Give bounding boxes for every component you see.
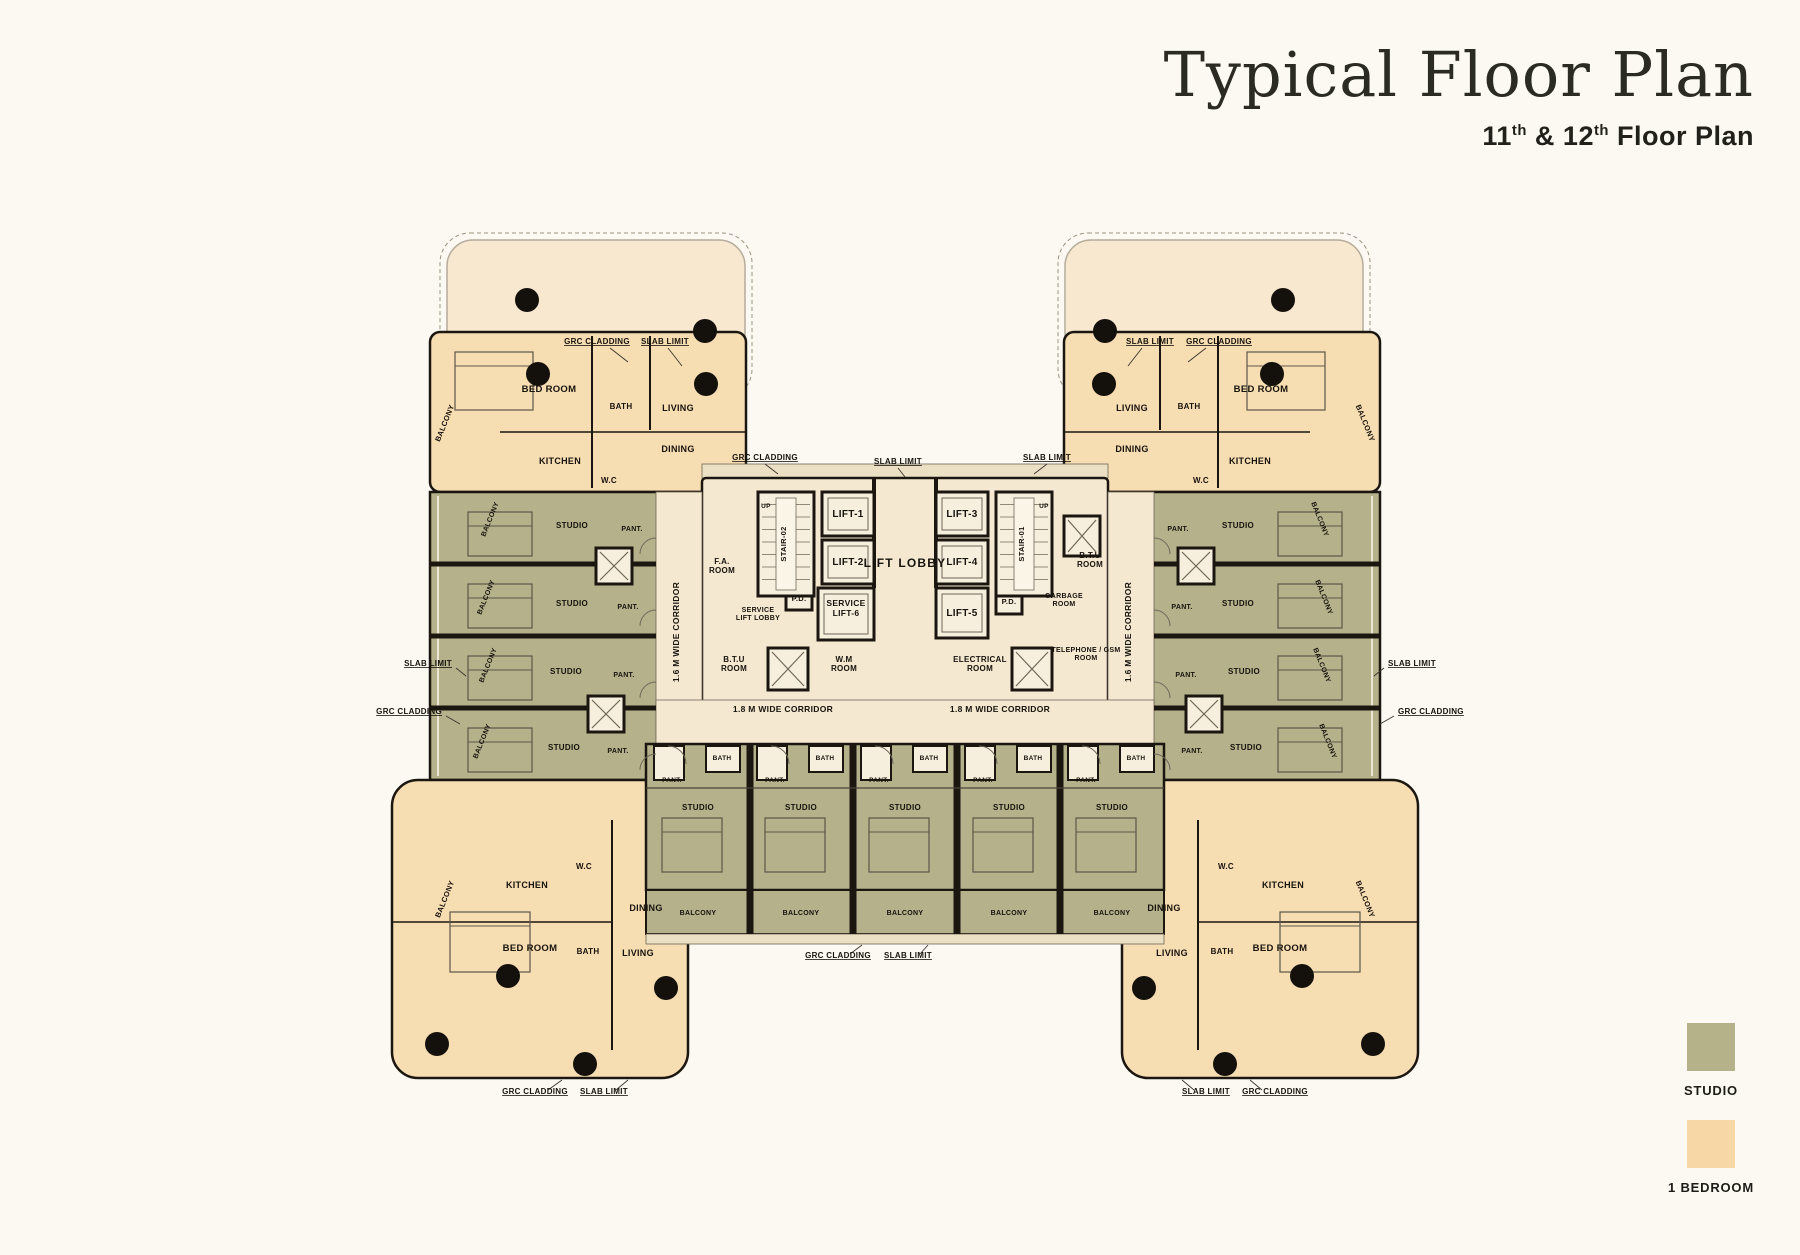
- plan-label-rooms-studio: STUDIO: [1096, 803, 1128, 812]
- plan-label-rooms-kitchen: KITCHEN: [1229, 456, 1271, 466]
- legend: STUDIO 1 BEDROOM: [1645, 1023, 1777, 1217]
- column-dot: [1093, 319, 1117, 343]
- column-dot: [1290, 964, 1314, 988]
- studio-shower-box: [654, 746, 684, 780]
- plan-label-core-lifts-1: LIFT-2: [832, 557, 863, 568]
- plan-label-rooms-living: LIVING: [1116, 403, 1148, 413]
- plan-label-core-pd: P.D.: [792, 594, 807, 603]
- plan-label-core-up: UP: [761, 503, 771, 510]
- plan-label-rooms-pantry: PANT.: [621, 526, 642, 533]
- plan-label-rooms-bedroom: BED ROOM: [1253, 943, 1308, 954]
- plan-label-corridor_wing: 1.6 M WIDE CORRIDOR: [1123, 582, 1133, 682]
- plan-label-core-lifts-4: LIFT-5: [946, 608, 977, 619]
- studio-shower-box: [757, 746, 787, 780]
- column-dot: [496, 964, 520, 988]
- plan-label-rooms-bedroom: BED ROOM: [503, 943, 558, 954]
- plan-label-notes-slab: SLAB LIMIT: [1182, 1087, 1230, 1096]
- plan-label-notes-grc: GRC CLADDING: [1186, 337, 1252, 346]
- column-dot: [526, 362, 550, 386]
- plan-label-rooms-studio: STUDIO: [556, 599, 588, 608]
- plan-label-rooms-pantry: PANT.: [607, 748, 628, 755]
- plan-label-rooms-pantry: PANT.: [1167, 526, 1188, 533]
- plan-label-core-lifts-0: LIFT-1: [832, 509, 863, 520]
- plan-label-rooms-balcony: BALCONY: [680, 910, 717, 917]
- plan-label-rooms-bath: BATH: [1127, 755, 1146, 762]
- column-dot: [515, 288, 539, 312]
- column-dot: [693, 319, 717, 343]
- legend-label-one-bedroom: 1 BEDROOM: [1645, 1180, 1777, 1195]
- plan-label-notes-slab: SLAB LIMIT: [884, 951, 932, 960]
- plan-label-core-btu_room: B.T.UROOM: [721, 655, 747, 673]
- plan-label-rooms-bath: BATH: [1178, 402, 1201, 411]
- floor-plan-drawing: LIFT-1LIFT-2LIFT-3LIFT-4LIFT-5SERVICELIF…: [0, 0, 1800, 1255]
- plan-label-rooms-pantry: PANT.: [973, 777, 993, 784]
- plan-label-rooms-pantry: PANT.: [1181, 748, 1202, 755]
- plan-label-notes-grc: GRC CLADDING: [732, 453, 798, 462]
- column-dot: [1092, 372, 1116, 396]
- plan-label-rooms-bath: BATH: [610, 402, 633, 411]
- plan-label-rooms-pantry: PANT.: [613, 672, 634, 679]
- plan-label-rooms-balcony: BALCONY: [887, 910, 924, 917]
- plan-label-notes-grc: GRC CLADDING: [1398, 707, 1464, 716]
- plan-label-notes-grc: GRC CLADDING: [376, 707, 442, 716]
- studio-shower-box: [1068, 746, 1098, 780]
- plan-label-rooms-dining: DINING: [1147, 903, 1180, 913]
- core-cladding-band: [702, 464, 1108, 478]
- plan-label-corridor_wing: 1.6 M WIDE CORRIDOR: [671, 582, 681, 682]
- plan-label-rooms-bath: BATH: [1211, 947, 1234, 956]
- plan-label-rooms-dining: DINING: [629, 903, 662, 913]
- plan-label-rooms-pantry: PANT.: [869, 777, 889, 784]
- column-dot: [573, 1052, 597, 1076]
- plan-label-rooms-kitchen: KITCHEN: [506, 880, 548, 890]
- plan-label-rooms-kitchen: KITCHEN: [1262, 880, 1304, 890]
- plan-label-rooms-bath: BATH: [713, 755, 732, 762]
- plan-label-notes-slab: SLAB LIMIT: [641, 337, 689, 346]
- legend-item-one-bedroom: 1 BEDROOM: [1645, 1120, 1777, 1195]
- plan-label-notes-grc: GRC CLADDING: [1242, 1087, 1308, 1096]
- plan-label-rooms-wc: W.C: [1218, 862, 1234, 871]
- plan-label-rooms-balcony: BALCONY: [991, 910, 1028, 917]
- plan-label-rooms-pantry: PANT.: [662, 777, 682, 784]
- plan-label-rooms-pantry: PANT.: [1175, 672, 1196, 679]
- legend-item-studio: STUDIO: [1645, 1023, 1777, 1098]
- legend-swatch-studio: [1687, 1023, 1735, 1071]
- plan-label-rooms-studio: STUDIO: [548, 743, 580, 752]
- plan-label-core-pd: P.D.: [1002, 597, 1017, 606]
- unit-1bed-top-right: [1064, 332, 1380, 492]
- plan-label-rooms-studio: STUDIO: [550, 667, 582, 676]
- plan-label-rooms-pantry: PANT.: [1171, 604, 1192, 611]
- plan-label-notes-grc: GRC CLADDING: [805, 951, 871, 960]
- column-dot: [1271, 288, 1295, 312]
- plan-label-notes-slab: SLAB LIMIT: [1126, 337, 1174, 346]
- plan-label-rooms-bath: BATH: [816, 755, 835, 762]
- plan-label-rooms-pantry: PANT.: [617, 604, 638, 611]
- unit-1bed-top-left: [430, 332, 746, 492]
- column-dot: [654, 976, 678, 1000]
- plan-label-rooms-studio: STUDIO: [1222, 521, 1254, 530]
- studio-shower-box: [861, 746, 891, 780]
- plan-label-corridor_lobby: 1.8 M WIDE CORRIDOR: [733, 704, 833, 714]
- plan-label-rooms-dining: DINING: [661, 444, 694, 454]
- plan-label-rooms-pantry: PANT.: [765, 777, 785, 784]
- column-dot: [1361, 1032, 1385, 1056]
- plan-label-notes-slab: SLAB LIMIT: [404, 659, 452, 668]
- column-dot: [1213, 1052, 1237, 1076]
- column-dot: [1132, 976, 1156, 1000]
- plan-label-rooms-bath: BATH: [1024, 755, 1043, 762]
- plan-label-rooms-bedroom: BED ROOM: [522, 384, 577, 395]
- column-dot: [1260, 362, 1284, 386]
- plan-label-core-lifts-2: LIFT-3: [946, 509, 977, 520]
- column-dot: [694, 372, 718, 396]
- plan-label-core-up: UP: [1039, 503, 1049, 510]
- plan-label-notes-slab: SLAB LIMIT: [1023, 453, 1071, 462]
- plan-label-rooms-wc: W.C: [1193, 476, 1209, 485]
- plan-label-rooms-studio: STUDIO: [556, 521, 588, 530]
- plan-label-rooms-studio: STUDIO: [1222, 599, 1254, 608]
- plan-label-rooms-kitchen: KITCHEN: [539, 456, 581, 466]
- plan-label-corridor_lobby: 1.8 M WIDE CORRIDOR: [950, 704, 1050, 714]
- plan-label-notes-slab: SLAB LIMIT: [1388, 659, 1436, 668]
- plan-label-notes-slab: SLAB LIMIT: [874, 457, 922, 466]
- plan-label-rooms-bath: BATH: [577, 947, 600, 956]
- plan-label-core-lift_lobby: LIFT LOBBY: [864, 556, 947, 570]
- plan-label-core-stair_01: STAIR-01: [1017, 526, 1026, 561]
- center-slab-edge: [646, 934, 1164, 944]
- plan-label-rooms-living: LIVING: [1156, 948, 1188, 958]
- plan-label-rooms-studio: STUDIO: [993, 803, 1025, 812]
- plan-label-rooms-wc: W.C: [601, 476, 617, 485]
- plan-label-rooms-balcony: BALCONY: [1094, 910, 1131, 917]
- plan-label-notes-grc: GRC CLADDING: [502, 1087, 568, 1096]
- plan-label-rooms-studio: STUDIO: [1228, 667, 1260, 676]
- plan-label-core-stair_02: STAIR-02: [779, 526, 788, 561]
- corridor-lobby-band: [656, 700, 1154, 746]
- plan-label-rooms-studio: STUDIO: [889, 803, 921, 812]
- plan-label-rooms-balcony: BALCONY: [783, 910, 820, 917]
- studio-shower-box: [965, 746, 995, 780]
- plan-label-notes-slab: SLAB LIMIT: [580, 1087, 628, 1096]
- plan-label-rooms-dining: DINING: [1115, 444, 1148, 454]
- plan-label-core-lifts-3: LIFT-4: [946, 557, 977, 568]
- plan-label-rooms-bath: BATH: [920, 755, 939, 762]
- plan-label-rooms-living: LIVING: [662, 403, 694, 413]
- plan-label-core-service_lift_lobby: SERVICELIFT LOBBY: [736, 607, 780, 622]
- plan-label-core-btu_room: B.T.UROOM: [1077, 551, 1103, 569]
- legend-swatch-one-bedroom: [1687, 1120, 1735, 1168]
- plan-label-rooms-living: LIVING: [622, 948, 654, 958]
- legend-label-studio: STUDIO: [1645, 1083, 1777, 1098]
- column-dot: [425, 1032, 449, 1056]
- plan-label-rooms-pantry: PANT.: [1076, 777, 1096, 784]
- plan-label-rooms-studio: STUDIO: [682, 803, 714, 812]
- note-leader: [1380, 716, 1394, 724]
- plan-label-rooms-studio: STUDIO: [785, 803, 817, 812]
- plan-label-rooms-wc: W.C: [576, 862, 592, 871]
- plan-label-rooms-studio: STUDIO: [1230, 743, 1262, 752]
- plan-label-notes-grc: GRC CLADDING: [564, 337, 630, 346]
- plan-label-rooms-bedroom: BED ROOM: [1234, 384, 1289, 395]
